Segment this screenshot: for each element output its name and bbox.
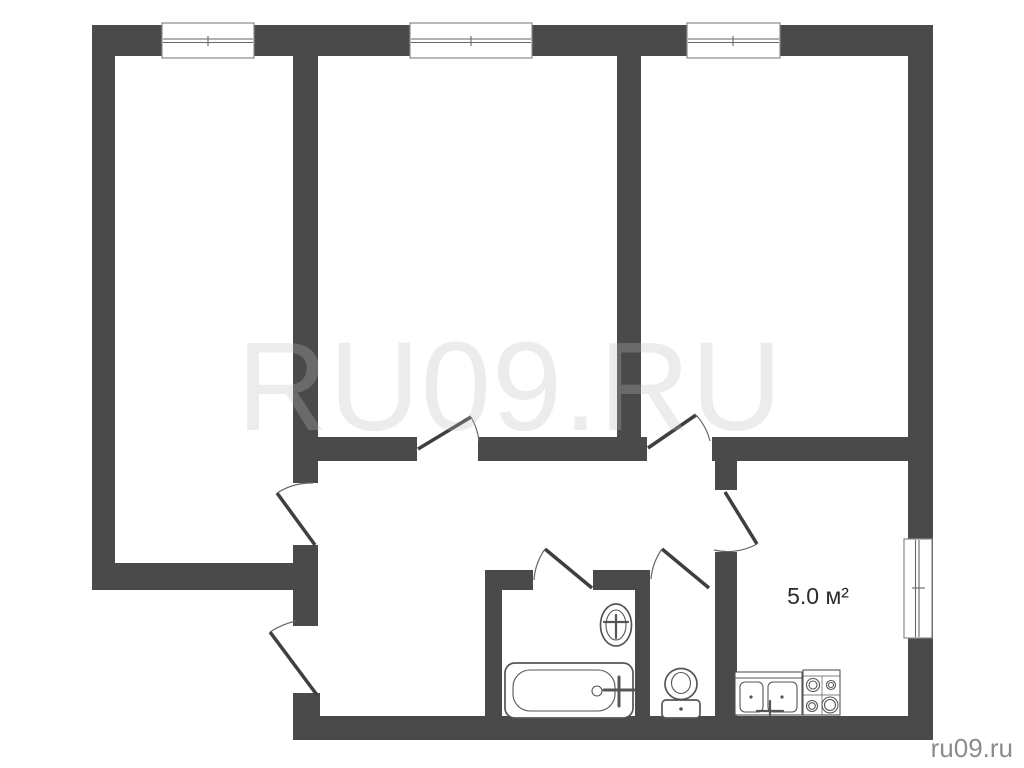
door-swing-arc (270, 621, 296, 632)
wall-segment-wc-divider (635, 590, 650, 716)
door-entrance (270, 621, 317, 695)
wall-segment-bath-top-b (593, 570, 650, 590)
door-wc (651, 549, 709, 588)
door-leaf (662, 549, 709, 588)
wall-segment-left-room-bottom (92, 563, 318, 590)
burner (825, 700, 836, 711)
wall-segment-left (92, 25, 115, 590)
door-leaf (545, 549, 592, 588)
floor-plan: RU09.RU 5.0 м² ru09.ru (0, 0, 1024, 768)
burner (829, 683, 834, 688)
door-kitchen (714, 492, 757, 552)
window-top-left (162, 23, 254, 58)
wall-segment-kitchen-stub (715, 461, 737, 490)
kitchen-area-label: 5.0 м² (787, 583, 849, 609)
toilet-bowl-inner (672, 673, 691, 694)
sink-drain-right (780, 695, 783, 698)
door-leaf (277, 493, 315, 545)
toilet (662, 669, 700, 719)
burner (809, 703, 816, 710)
site-label: ru09.ru (931, 733, 1013, 763)
door-leaf (270, 632, 317, 695)
window-kitchen-right (904, 539, 932, 638)
wall-segment-bath-top-a (485, 570, 533, 590)
burner (809, 681, 817, 689)
door-left-room (277, 483, 315, 545)
door-swing-arc (714, 544, 757, 552)
sink-drain-left (749, 695, 752, 698)
bathtub-drain (592, 686, 602, 696)
toilet-button (679, 707, 683, 711)
wall-segment-bath-left (485, 570, 502, 716)
bathtub (505, 663, 634, 718)
window-top-middle (410, 23, 532, 58)
wall-segment-kitchen-left (715, 552, 737, 716)
stove (803, 670, 840, 715)
door-leaf (725, 492, 757, 544)
kitchen-sink (735, 672, 802, 715)
door-bathroom (534, 549, 592, 588)
door-swing-arc (277, 483, 313, 493)
wash-basin (601, 604, 632, 646)
door-swing-arc (534, 549, 545, 580)
floor-plan-page: RU09.RU 5.0 м² ru09.ru (0, 0, 1024, 768)
window-top-right (687, 23, 780, 58)
wall-segment-bottom (295, 716, 933, 740)
door-swing-arc (651, 549, 662, 579)
wall-segment-left-partition-mid (293, 545, 318, 626)
wall-segment-left-partition-corner (293, 693, 320, 740)
watermark: RU09.RU (237, 316, 783, 457)
